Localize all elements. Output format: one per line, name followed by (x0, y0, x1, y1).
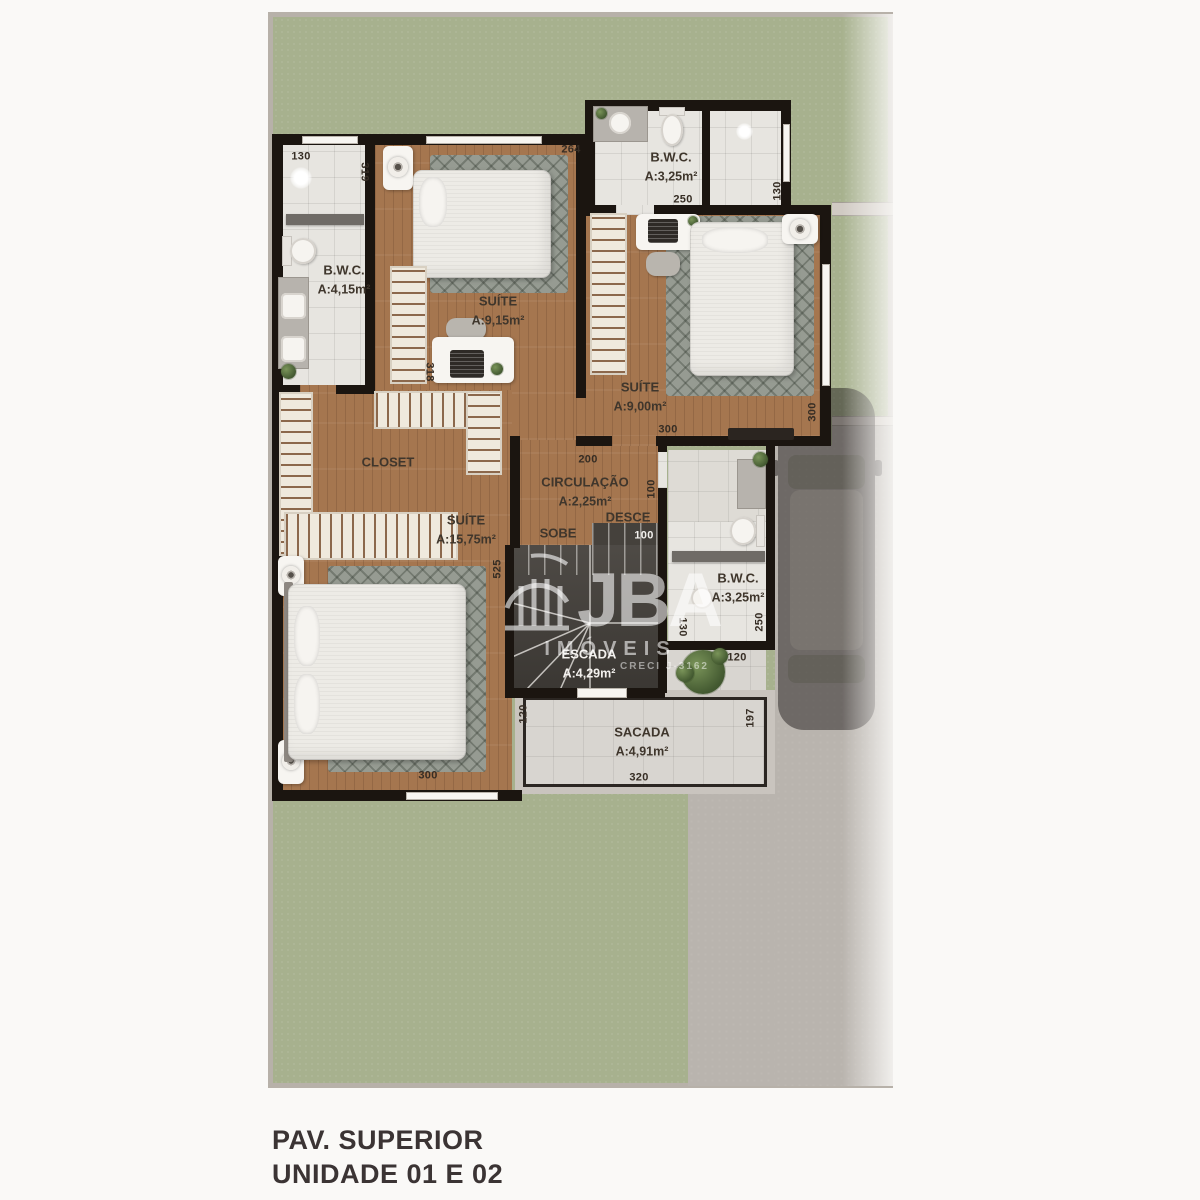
dim-label: 130 (773, 181, 784, 200)
dim-label: 264 (561, 145, 580, 156)
window (426, 136, 542, 144)
wardrobe (466, 391, 502, 475)
wardrobe (284, 512, 458, 560)
laptop-icon (648, 219, 678, 243)
dim-label: 250 (673, 195, 692, 206)
room-label-sacada: SACADAA:4,91m² (614, 724, 670, 761)
room-label-suite-900: SUÍTEA:9,00m² (614, 379, 667, 416)
plant-icon (753, 452, 768, 467)
floor-plan-image: B.W.C.A:4,15m² SUÍTEA:9,15m² B.W.C.A:3,2… (0, 0, 1200, 1200)
room-label-closet: CLOSET (362, 454, 415, 473)
room-label-bwc-top-right: B.W.C.A:3,25m² (645, 149, 698, 186)
wardrobe (590, 213, 627, 375)
tv-console (728, 428, 794, 440)
dim-label: 197 (746, 708, 757, 727)
caption-line-1: PAV. SUPERIOR (272, 1124, 503, 1158)
room-label-suite-1575: SUÍTEA:15,75m² (436, 512, 496, 549)
dim-label: 300 (418, 771, 437, 782)
dim-label: 318 (424, 362, 435, 381)
room-label-circulacao: CIRCULAÇÃOA:2,25m² (541, 474, 628, 511)
watermark: JBA IMÓVEIS CRECI J-3162 (498, 546, 723, 673)
dim-label: 200 (578, 455, 597, 466)
toilet-icon (756, 515, 765, 547)
door-opening (576, 398, 586, 436)
sink-icon (281, 336, 306, 362)
wall (510, 436, 520, 548)
room-label-bwc-top-left: B.W.C.A:4,15m² (318, 262, 371, 299)
stair-label-desce: DESCE (606, 509, 651, 528)
photo-fade (842, 14, 893, 1086)
shower-light-icon (736, 123, 753, 140)
toilet-icon (290, 238, 316, 264)
plant-icon (596, 108, 607, 119)
laptop-icon (450, 350, 484, 378)
lamp-icon (790, 219, 810, 239)
stair-label-sobe: SOBE (540, 525, 577, 544)
pillow (294, 674, 320, 734)
dim-label: 300 (658, 425, 677, 436)
lamp-icon (388, 157, 408, 177)
sink-icon (281, 293, 306, 319)
dim-label: 300 (808, 402, 819, 421)
window (302, 136, 358, 144)
window (406, 792, 498, 800)
dim-label: 100 (647, 479, 658, 498)
ceiling-light-icon (290, 167, 312, 189)
pillow (702, 227, 768, 253)
sink-icon (609, 112, 631, 134)
bathroom-shelf (286, 214, 364, 225)
window (822, 264, 830, 386)
plan-caption: PAV. SUPERIOR UNIDADE 01 E 02 (272, 1124, 503, 1192)
plant-icon (491, 363, 503, 375)
balcony-door (577, 688, 627, 698)
driveway-bottom (688, 790, 775, 1086)
watermark-brand: JBA (577, 569, 720, 634)
window (783, 124, 790, 182)
dim-label: 120 (727, 653, 746, 664)
room-label-suite-915: SUÍTEA:9,15m² (472, 293, 525, 330)
pillow (419, 177, 447, 227)
dim-label: 250 (755, 612, 766, 631)
toilet-icon (730, 517, 756, 545)
dim-label: 100 (634, 531, 653, 542)
jba-dome-logo-icon (501, 546, 573, 634)
toilet-icon (661, 114, 683, 146)
dim-label: 319 (359, 162, 370, 181)
wardrobe (374, 391, 476, 429)
door-opening (658, 452, 667, 488)
door-opening (612, 436, 656, 446)
caption-line-2: UNIDADE 01 E 02 (272, 1158, 503, 1192)
pillow (294, 606, 320, 666)
wardrobe (390, 266, 427, 384)
dim-label: 130 (291, 152, 310, 163)
dim-label: 120 (519, 704, 530, 723)
watermark-license: CRECI J-3162 (498, 661, 723, 673)
shower-partition-wall (702, 104, 710, 207)
desk-chair (646, 252, 680, 276)
plant-icon (281, 364, 296, 379)
wall (766, 446, 775, 650)
dim-label: 320 (629, 773, 648, 784)
